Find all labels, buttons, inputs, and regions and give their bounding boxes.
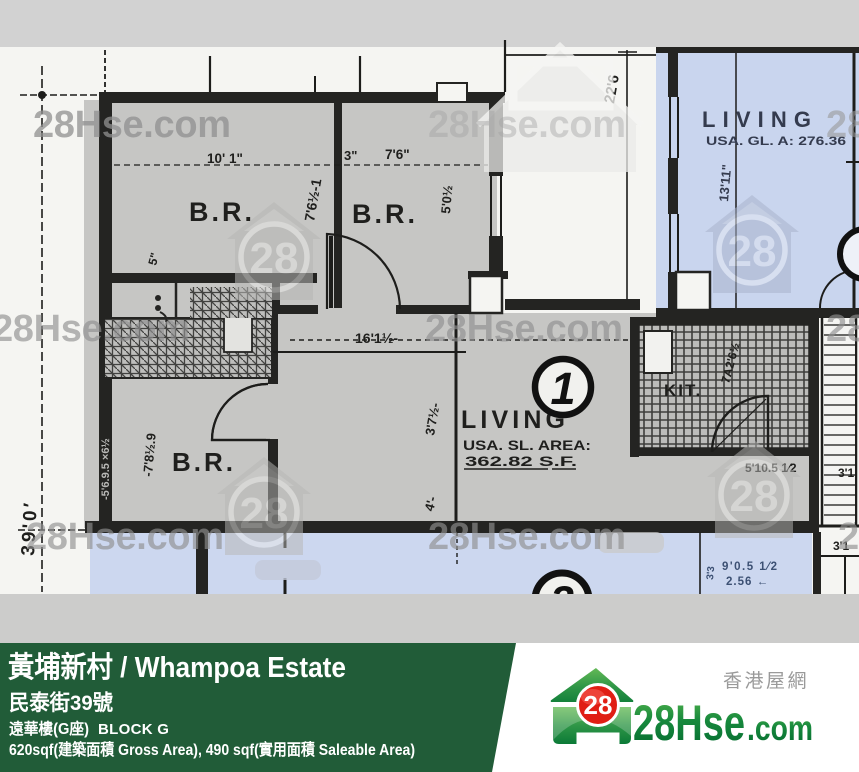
svg-text:28Hse.com: 28Hse.com: [26, 516, 224, 558]
svg-text:5'0½: 5'0½: [438, 185, 455, 215]
svg-text:B.R.: B.R.: [352, 199, 418, 229]
svg-text:7'6": 7'6": [385, 147, 410, 162]
svg-text:.com: .com: [747, 709, 813, 748]
svg-text:遠華樓(G座): 遠華樓(G座): [9, 719, 89, 738]
svg-text:USA. SL. AREA:: USA. SL. AREA:: [463, 437, 591, 453]
svg-text:28Hse: 28Hse: [633, 695, 745, 751]
svg-text:16'1½-: 16'1½-: [355, 330, 398, 346]
svg-text:B.R.: B.R.: [172, 447, 236, 477]
svg-text:28H: 28H: [826, 308, 859, 350]
svg-text:USA. GL. A: 276.36: USA. GL. A: 276.36: [706, 136, 846, 148]
svg-text:28Hse.com: 28Hse.com: [33, 104, 231, 146]
svg-text:28: 28: [838, 516, 859, 558]
svg-text:BLOCK G: BLOCK G: [98, 721, 169, 738]
svg-text:香港屋網: 香港屋網: [723, 670, 809, 692]
svg-text:620sqf(建築面積 Gross Area), 490 s: 620sqf(建築面積 Gross Area), 490 sqf(實用面積 Sa…: [9, 740, 415, 759]
svg-text:10' 1": 10' 1": [207, 151, 243, 166]
svg-text:民泰街39號: 民泰街39號: [9, 690, 113, 715]
svg-text:9'0.5 1⁄2: 9'0.5 1⁄2: [722, 561, 779, 573]
svg-text:28Hse.com: 28Hse.com: [0, 308, 190, 350]
svg-text:28: 28: [826, 104, 859, 146]
svg-text:3'3: 3'3: [705, 565, 717, 580]
svg-text:1: 1: [550, 363, 575, 414]
svg-text:28: 28: [728, 227, 777, 276]
svg-text:KIT.: KIT.: [664, 381, 702, 400]
svg-text:B.R.: B.R.: [189, 197, 255, 227]
svg-text:28Hse.com: 28Hse.com: [428, 104, 626, 146]
svg-text:28: 28: [730, 472, 779, 521]
svg-text:2.56 ←: 2.56 ←: [726, 576, 769, 588]
svg-text:28: 28: [240, 489, 289, 538]
svg-text:3'1: 3'1: [838, 466, 855, 480]
svg-text:3": 3": [344, 148, 357, 163]
svg-text:28: 28: [584, 690, 613, 720]
svg-text:-5'6.9.5 ×6½: -5'6.9.5 ×6½: [100, 438, 112, 500]
svg-text:28Hse.com: 28Hse.com: [428, 516, 626, 558]
svg-text:362.82 S.F.: 362.82 S.F.: [465, 453, 577, 469]
svg-text:黃埔新村 / Whampoa Estate: 黃埔新村 / Whampoa Estate: [8, 651, 346, 684]
svg-text:28: 28: [250, 234, 299, 283]
svg-text:28Hse.com: 28Hse.com: [425, 308, 623, 350]
